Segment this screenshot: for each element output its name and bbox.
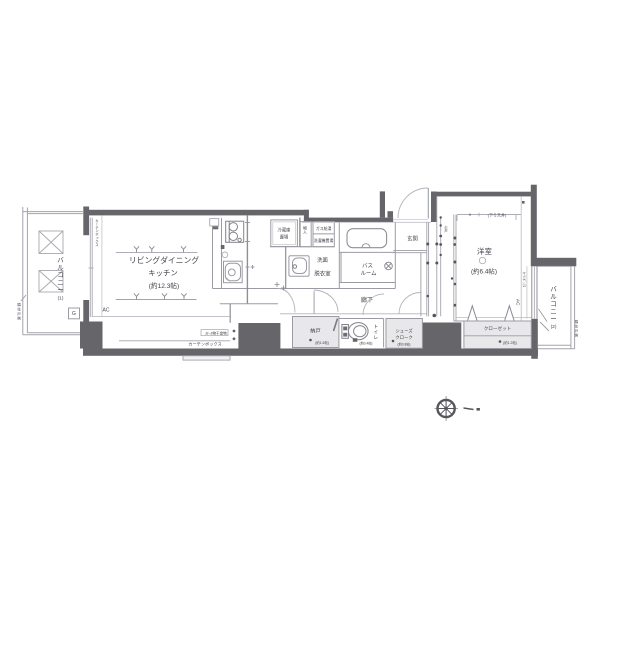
svg-text:AC: AC xyxy=(516,299,521,306)
svg-text:(約1.6帖): (約1.6帖) xyxy=(315,340,329,345)
svg-text:キッチン: キッチン xyxy=(148,269,178,278)
svg-text:置場: 置場 xyxy=(280,234,289,241)
svg-text:ル: ル xyxy=(57,265,64,272)
svg-text:脱衣室: 脱衣室 xyxy=(314,270,331,278)
svg-text:洗面: 洗面 xyxy=(317,256,328,264)
svg-text:イ: イ xyxy=(373,331,378,336)
svg-text:ト: ト xyxy=(373,325,378,330)
svg-text:隣: 隣 xyxy=(17,302,21,307)
svg-text:クローゼット: クローゼット xyxy=(484,325,512,332)
svg-text:ｽﾁｰﾙ物干金物: ｽﾁｰﾙ物干金物 xyxy=(205,331,227,336)
svg-text:(約0.4帖): (約0.4帖) xyxy=(360,341,373,346)
svg-text:玄関: 玄関 xyxy=(407,235,418,243)
svg-text:納戸: 納戸 xyxy=(310,327,320,335)
svg-text:シューズ: シューズ xyxy=(395,328,413,335)
svg-text:ニ: ニ xyxy=(57,280,64,287)
svg-text:洋室: 洋室 xyxy=(477,246,492,256)
svg-text:カーテンボックス: カーテンボックス xyxy=(94,218,98,247)
svg-text:(約0.8帖): (約0.8帖) xyxy=(398,342,411,347)
svg-text:(約6.4帖): (約6.4帖) xyxy=(471,267,497,276)
svg-text:(下り天井): (下り天井) xyxy=(488,212,507,218)
svg-text:(1): (1) xyxy=(58,296,64,302)
svg-text:ル: ル xyxy=(550,294,557,301)
svg-text:引戸: 引戸 xyxy=(444,225,448,233)
svg-text:(約1.2帖): (約1.2帖) xyxy=(503,340,517,345)
svg-text:戸: 戸 xyxy=(17,311,21,316)
svg-text:(約12.3帖): (約12.3帖) xyxy=(149,281,179,290)
svg-text:リビングダイニング: リビングダイニング xyxy=(129,255,199,265)
svg-text:コ: コ xyxy=(57,271,64,279)
svg-text:レ: レ xyxy=(373,336,378,341)
svg-text:洗濯機置場: 洗濯機置場 xyxy=(314,238,334,243)
svg-text:ガス給湯: ガス給湯 xyxy=(316,226,332,231)
svg-text:コ: コ xyxy=(550,300,557,308)
svg-text:ルーム: ルーム xyxy=(360,270,377,277)
svg-text:G: G xyxy=(72,311,76,317)
svg-text:物入: 物入 xyxy=(303,225,308,234)
svg-text:バス: バス xyxy=(362,263,373,270)
svg-text:冷蔵庫: 冷蔵庫 xyxy=(278,227,292,234)
svg-text:ー: ー xyxy=(57,287,64,294)
svg-text:AC: AC xyxy=(103,308,110,314)
svg-text:(2): (2) xyxy=(551,324,557,330)
svg-text:バ: バ xyxy=(57,256,64,264)
svg-text:側: 側 xyxy=(17,316,21,321)
svg-text:バ: バ xyxy=(550,285,557,293)
svg-text:カーテンボックス: カーテンボックス xyxy=(188,341,221,348)
svg-text:ー: ー xyxy=(550,316,557,323)
svg-text:住: 住 xyxy=(17,307,21,312)
svg-text:ニ: ニ xyxy=(550,309,557,316)
